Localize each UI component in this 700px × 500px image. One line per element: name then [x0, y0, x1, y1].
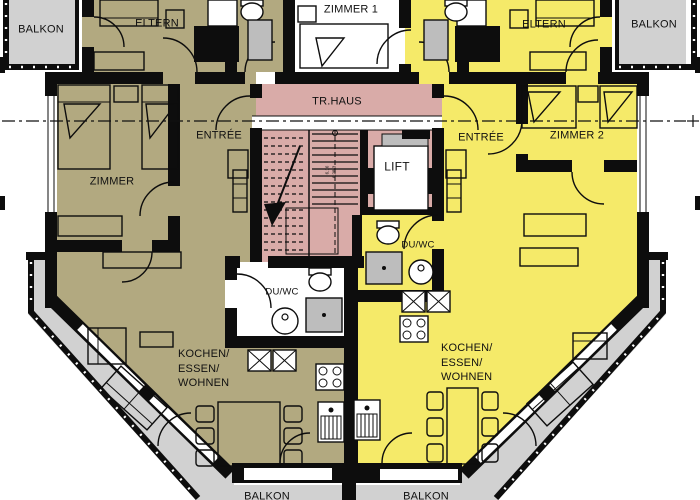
nightstand-icon [298, 6, 316, 22]
room-label-zimmer-1: ZIMMER 1 [324, 5, 378, 16]
room-label-eltern-left: ELTERN [135, 19, 179, 30]
shower-icon [248, 20, 272, 60]
washbasin-icon [272, 308, 298, 334]
room-label-balkon-bottom-right: BALKON [403, 492, 449, 500]
window-icon [380, 469, 458, 480]
stair-dimension-note: 6.28.3 [329, 166, 340, 179]
room-label-line: KOCHEN/ [441, 341, 493, 356]
room-label-zimmer-left: ZIMMER [90, 177, 135, 188]
room-label-line: KOCHEN/ [178, 347, 230, 362]
toilet-icon [377, 226, 399, 244]
room-label-line: ESSEN/ [178, 362, 230, 377]
room-label-line: WOHNEN [178, 376, 230, 391]
room-label-balkon-top-left: BALKON [18, 25, 64, 36]
bed-icon [300, 24, 388, 68]
room-label-line: ESSEN/ [441, 356, 493, 371]
room-label-du-wc-right: DU/WC [401, 240, 434, 251]
floor-plan: BALKON ELTERN ZIMMER 1 ELTERN BALKON TR.… [0, 0, 700, 500]
stair-landing-band [252, 116, 442, 130]
shower-icon [424, 20, 448, 60]
room-label-entree-right: ENTRÉE [458, 133, 504, 144]
room-label-du-wc-left: DU/WC [265, 287, 298, 298]
balcony-top-right [619, 0, 686, 67]
room-label-kochen-right: KOCHEN/ ESSEN/ WOHNEN [441, 341, 493, 385]
room-label-zimmer-2: ZIMMER 2 [550, 131, 604, 142]
floor-plan-drawing [0, 0, 700, 500]
blanket-fold-icon [316, 38, 344, 66]
washbasin-icon [409, 260, 433, 284]
shaft-icon [208, 0, 237, 26]
room-label-entree-left: ENTRÉE [196, 131, 242, 142]
toilet-icon [309, 273, 331, 291]
window-icon [244, 468, 332, 480]
room-label-kochen-left: KOCHEN/ ESSEN/ WOHNEN [178, 347, 230, 391]
room-label-lift: LIFT [384, 162, 409, 173]
toilet-icon [241, 3, 263, 21]
room-label-eltern-right: ELTERN [522, 20, 566, 31]
room-label-balkon-bottom-left: BALKON [244, 492, 290, 500]
room-label-tr-haus: TR.HAUS [312, 97, 362, 108]
room-label-balkon-top-right: BALKON [631, 20, 677, 31]
toilet-icon [445, 3, 467, 21]
room-label-line: WOHNEN [441, 370, 493, 385]
